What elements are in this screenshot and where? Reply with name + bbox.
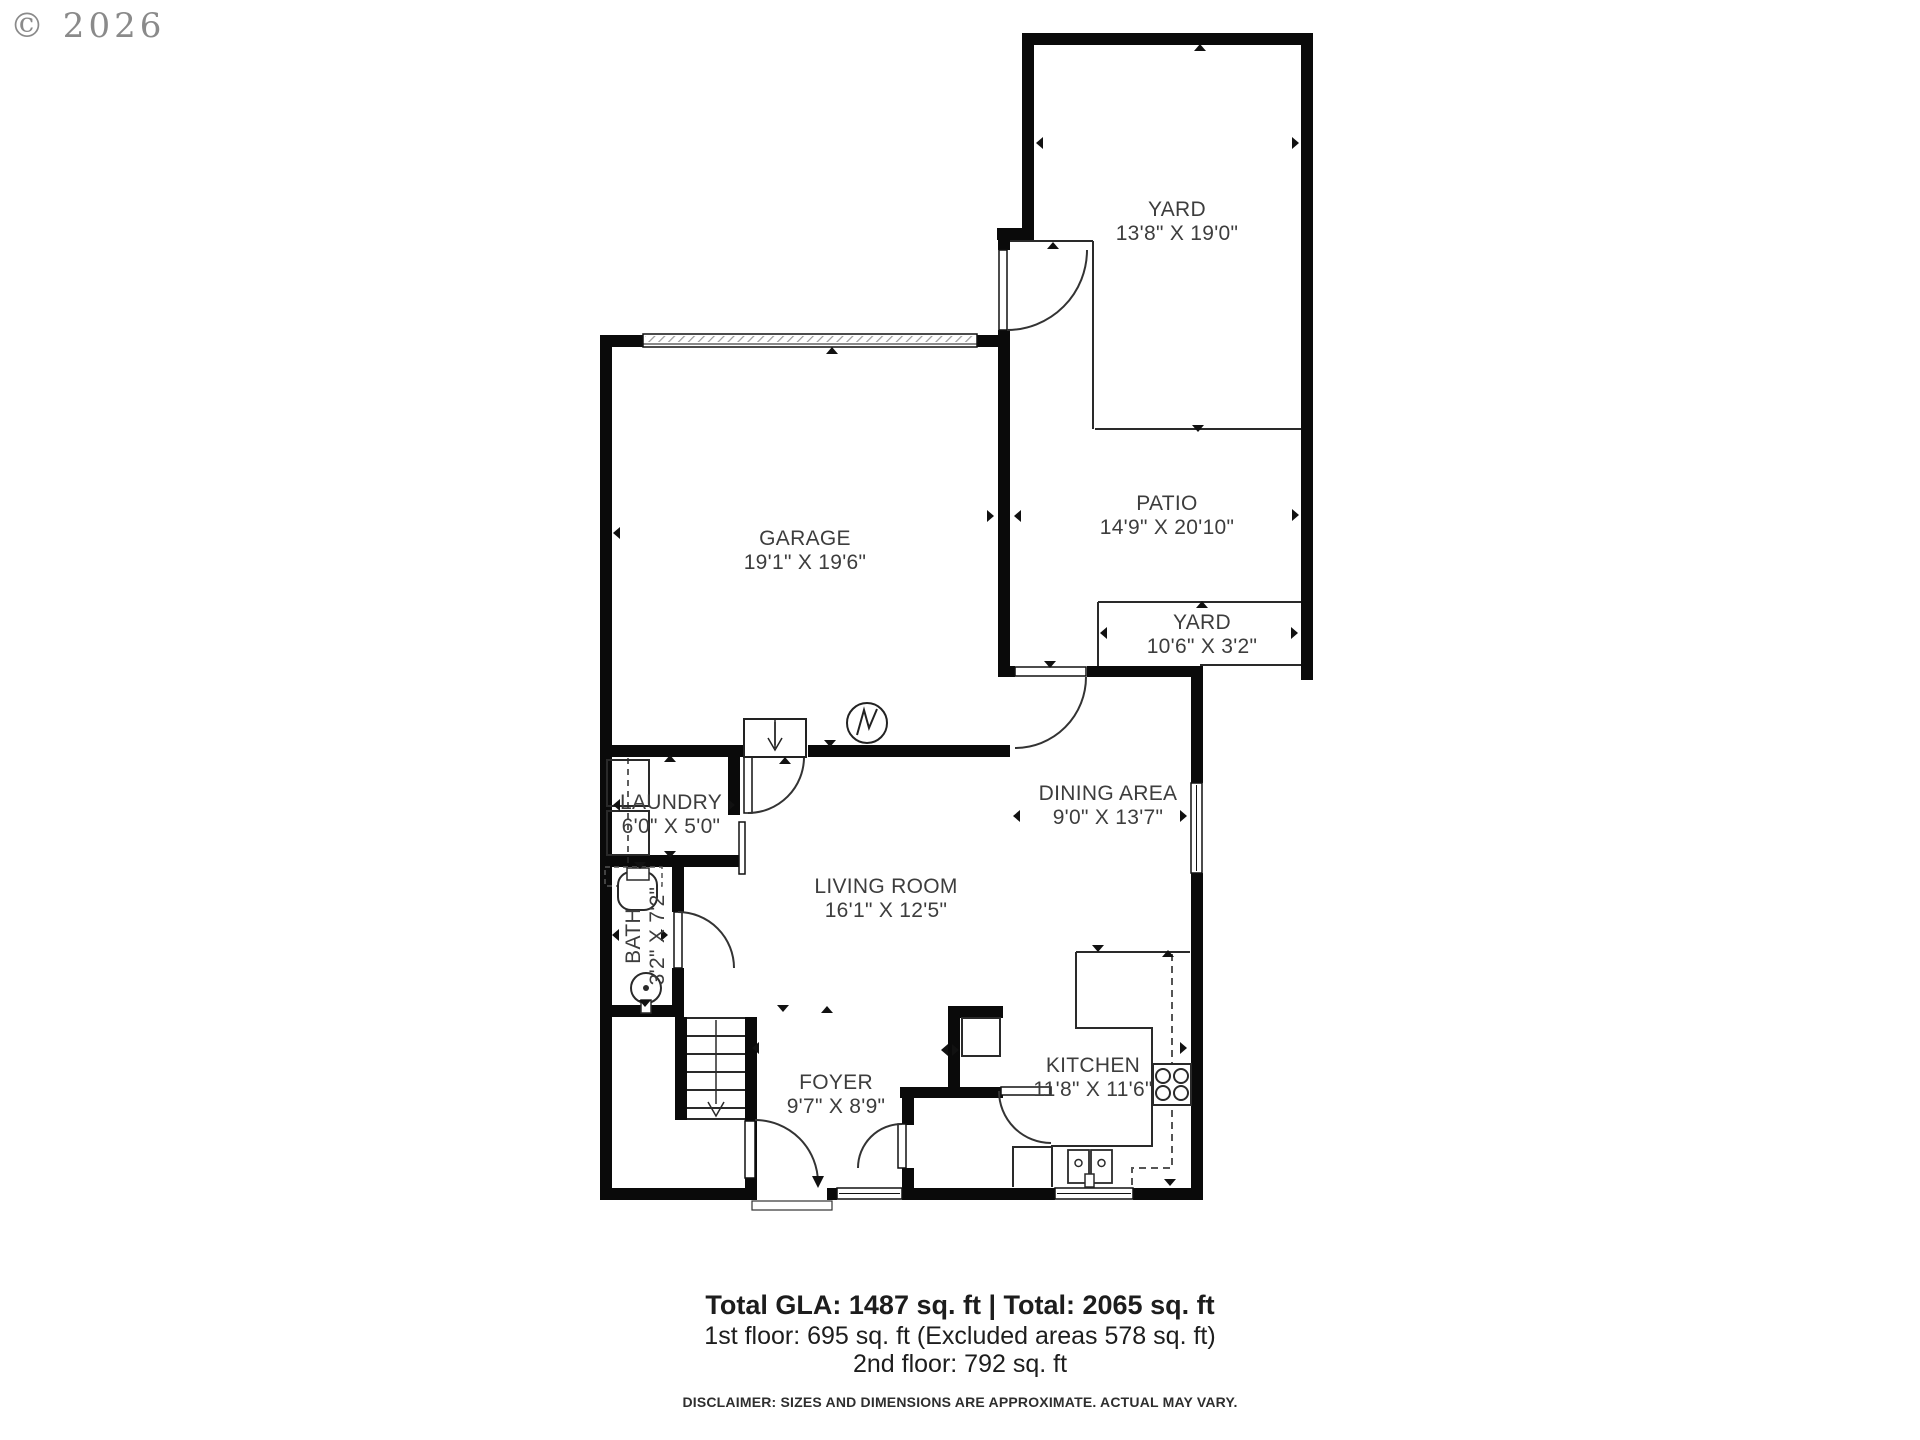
- garage-entry-leaf: [744, 757, 752, 813]
- room-label-patio: PATIO14'9" X 20'10": [1100, 492, 1235, 540]
- room-label-bath: BATH3'2" X 7'2": [622, 887, 670, 986]
- room-label-living: LIVING ROOM16'1" X 12'5": [814, 875, 957, 923]
- bath-door-arc: [678, 912, 734, 968]
- room-label-kitchen: KITCHEN11'8" X 11'6": [1033, 1054, 1152, 1102]
- room-label-yard-top: YARD13'8" X 19'0": [1116, 198, 1239, 246]
- closet-shelf-icon: [962, 1018, 1000, 1056]
- room-label-dining: DINING AREA9'0" X 13'7": [1039, 782, 1178, 830]
- footer-first-floor: 1st floor: 695 sq. ft (Excluded areas 57…: [0, 1322, 1920, 1351]
- room-label-yard-lower: YARD10'6" X 3'2": [1147, 611, 1258, 659]
- footer-second-floor: 2nd floor: 792 sq. ft: [0, 1350, 1920, 1379]
- front-door-arc: [755, 1120, 818, 1183]
- patio-door-leaf: [1015, 667, 1086, 676]
- threshold-icon: [752, 1201, 832, 1210]
- water-heater-icon: [847, 703, 887, 743]
- pocket-door-leaf: [739, 822, 745, 874]
- room-label-foyer: FOYER9'7" X 8'9": [787, 1071, 886, 1119]
- floorplan-svg: [0, 0, 1920, 1440]
- yard-gate-leaf: [999, 250, 1007, 330]
- stairs-icon: [687, 1018, 745, 1116]
- patio-door-arc: [1015, 677, 1086, 748]
- garage-entry-arc: [748, 757, 804, 813]
- floorplan-canvas: © 2026: [0, 0, 1920, 1440]
- footer-totals: Total GLA: 1487 sq. ft | Total: 2065 sq.…: [0, 1290, 1920, 1321]
- front-door-leaf: [745, 1121, 755, 1178]
- yard-gate-arc: [1007, 250, 1087, 330]
- footer-disclaimer: DISCLAIMER: SIZES AND DIMENSIONS ARE APP…: [0, 1394, 1920, 1410]
- room-label-laundry: LAUNDRY6'0" X 5'0": [620, 791, 722, 839]
- garage-step-icon: [744, 719, 806, 757]
- thin-boundaries-group: [687, 241, 1301, 1119]
- hall-door-leaf: [898, 1124, 906, 1168]
- bath-door-leaf: [674, 912, 682, 968]
- room-label-garage: GARAGE19'1" X 19'6": [744, 527, 867, 575]
- hall-door-arc: [858, 1124, 902, 1168]
- garage-door-icon: [643, 334, 977, 347]
- front-door-arrow: [812, 1176, 824, 1188]
